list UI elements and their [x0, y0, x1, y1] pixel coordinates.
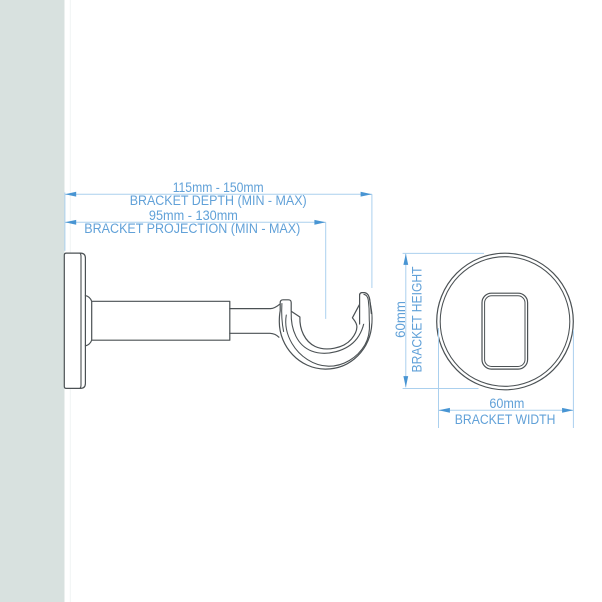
svg-text:BRACKET DEPTH (MIN - MAX): BRACKET DEPTH (MIN - MAX): [130, 193, 307, 208]
svg-text:BRACKET HEIGHT: BRACKET HEIGHT: [409, 267, 424, 373]
svg-text:60mm: 60mm: [393, 301, 408, 338]
svg-text:BRACKET WIDTH: BRACKET WIDTH: [455, 412, 556, 427]
svg-text:BRACKET PROJECTION (MIN - MAX): BRACKET PROJECTION (MIN - MAX): [84, 221, 300, 236]
svg-text:60mm: 60mm: [489, 396, 524, 411]
